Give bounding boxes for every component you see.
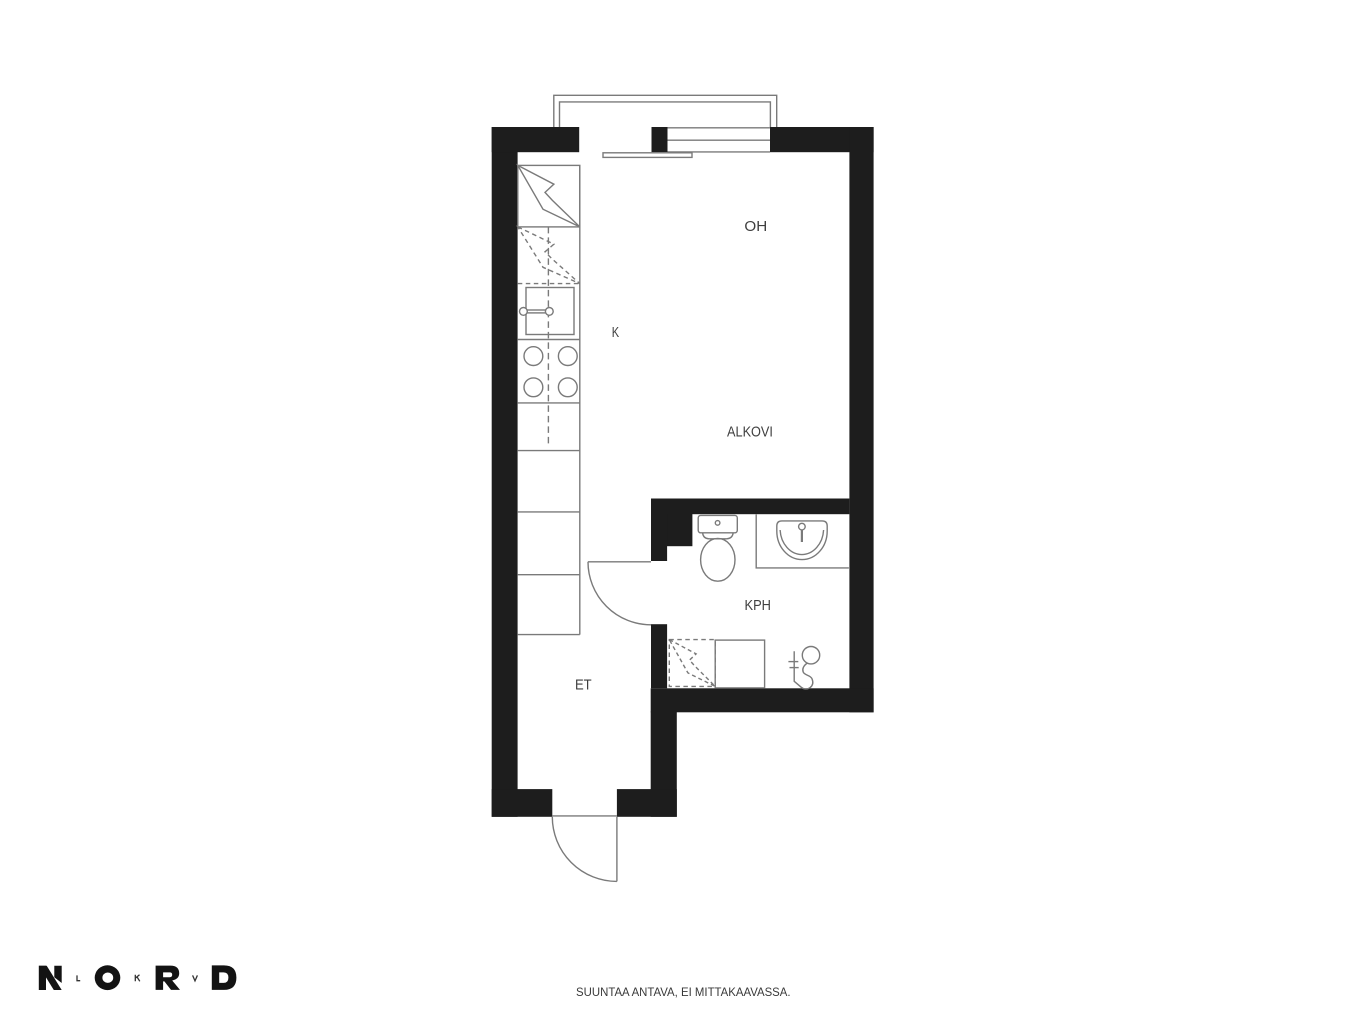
svg-text:OH: OH xyxy=(744,219,767,235)
svg-text:KPH: KPH xyxy=(745,598,771,614)
svg-text:K: K xyxy=(612,325,620,341)
svg-text:ET: ET xyxy=(575,677,592,693)
svg-text:SUUNTAA ANTAVA, EI MITTAKAAVAS: SUUNTAA ANTAVA, EI MITTAKAAVASSA. xyxy=(576,987,791,999)
svg-text:ALKOVI: ALKOVI xyxy=(727,424,773,440)
